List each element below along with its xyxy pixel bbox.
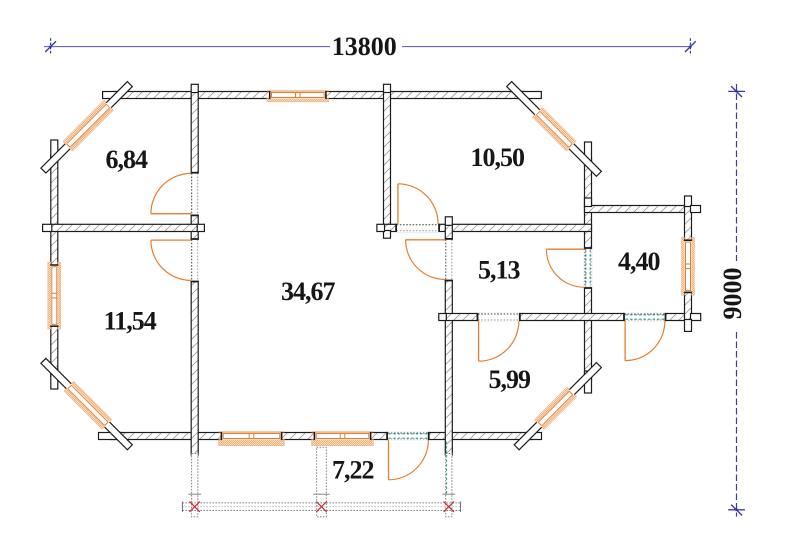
- svg-text:7,22: 7,22: [332, 456, 374, 485]
- svg-text:5,13: 5,13: [478, 255, 521, 284]
- svg-text:6,84: 6,84: [106, 145, 149, 174]
- svg-text:13800: 13800: [332, 32, 397, 61]
- svg-text:11,54: 11,54: [104, 307, 157, 336]
- svg-text:10,50: 10,50: [471, 143, 526, 172]
- svg-text:5,99: 5,99: [489, 365, 532, 394]
- svg-text:9000: 9000: [718, 268, 747, 320]
- svg-text:4,40: 4,40: [618, 247, 661, 276]
- svg-text:34,67: 34,67: [281, 277, 336, 306]
